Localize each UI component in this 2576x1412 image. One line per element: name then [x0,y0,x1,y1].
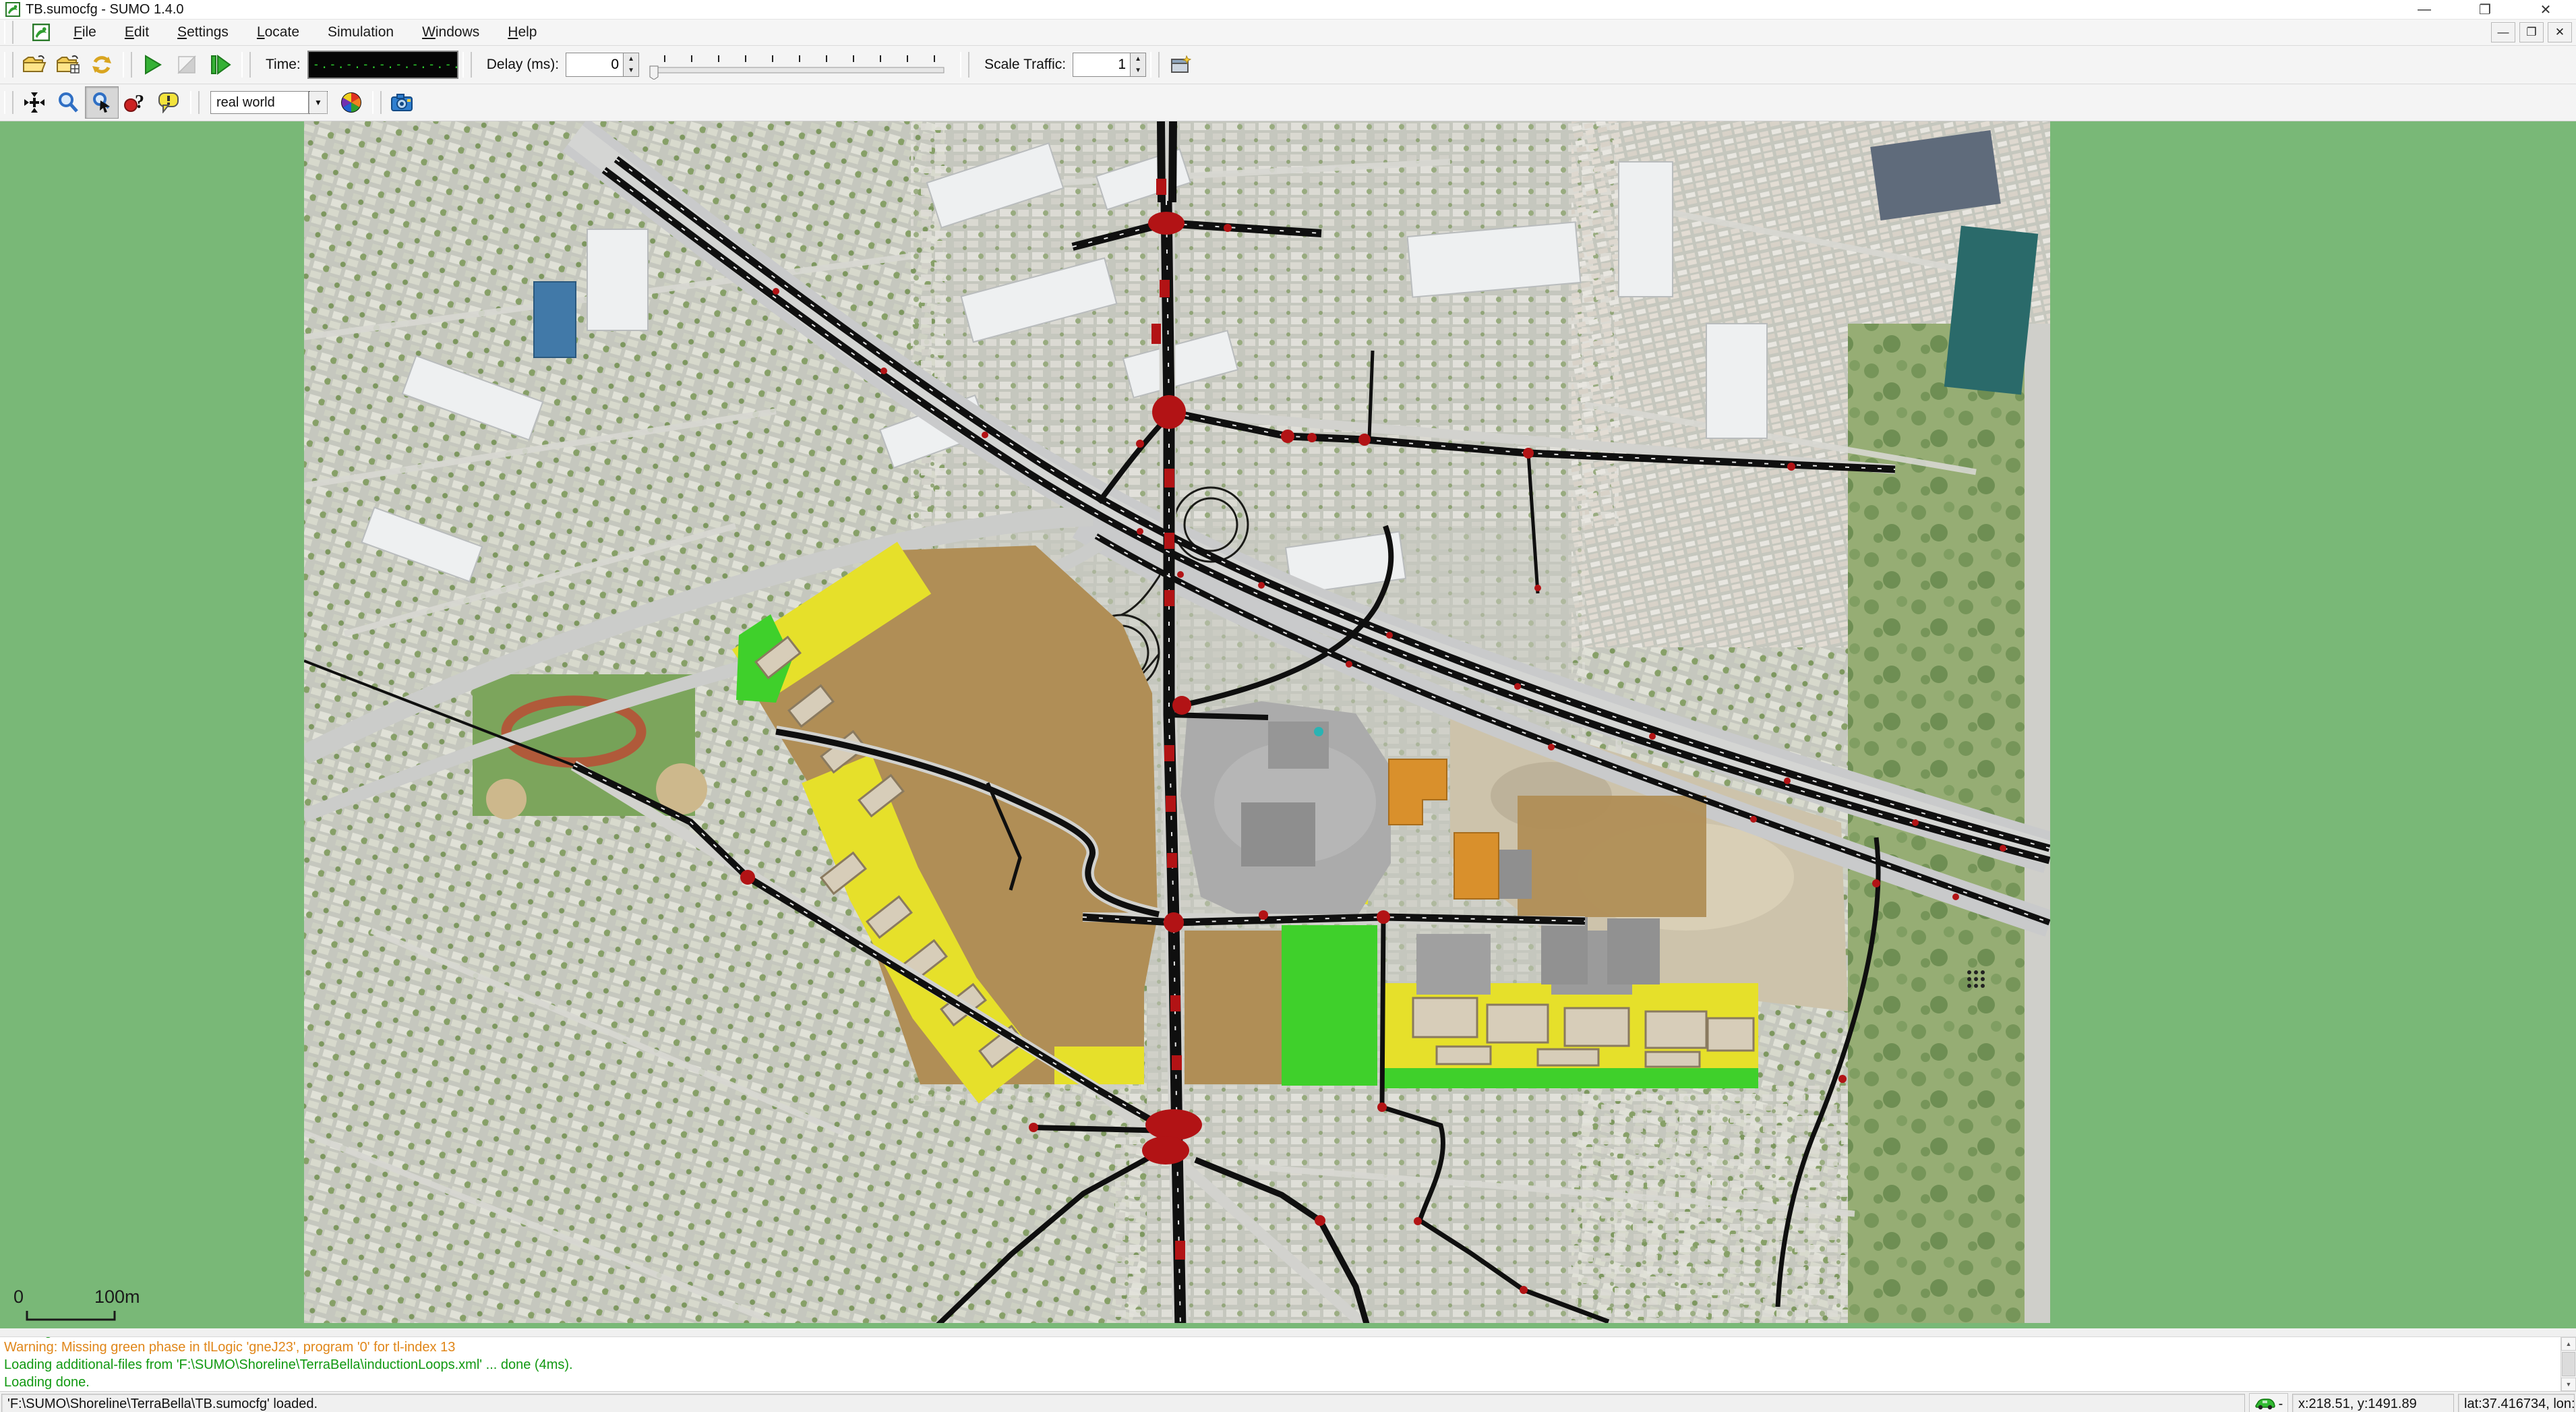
coloring-scheme-combobox[interactable]: real world ▼ [210,91,328,114]
status-latlon: lat:37.416734, lon:-122.090 [2458,1394,2575,1412]
mdi-close-button[interactable]: ✕ [2548,22,2572,42]
delay-label: Delay (ms): [487,57,559,73]
stop-button[interactable] [170,49,204,81]
message-log[interactable]: Loading net-file from 'F:\SUMO\Shoreline… [0,1337,2576,1392]
scale-distance-label: 100m [94,1287,140,1307]
delay-down-arrow[interactable]: ▼ [624,65,638,76]
toolbar-grip[interactable] [372,91,382,114]
log-line-additional: Loading additional-files from 'F:\SUMO\S… [4,1356,2576,1374]
menu-edit[interactable]: Edit [111,24,163,40]
chevron-down-icon[interactable]: ▼ [309,91,328,114]
edit-coloring-button[interactable] [334,86,368,119]
coloring-scheme-value: real world [210,91,309,114]
title-bar: TB.sumocfg - SUMO 1.4.0 — ❐ ✕ [0,0,2576,20]
menu-settings[interactable]: Settings [163,24,243,40]
menu-bar: File Edit Settings Locate Simulation Win… [0,20,2576,46]
question-icon: ? [124,92,147,113]
help-button[interactable]: ? [119,86,152,119]
stop-icon [177,55,196,74]
car-icon [2254,1398,2276,1410]
minimize-button[interactable]: — [2394,0,2455,19]
delay-input[interactable] [566,53,624,77]
screenshot-button[interactable] [386,86,419,119]
toolbar-grip[interactable] [241,52,251,78]
toolbar-grip[interactable] [4,52,13,78]
tooltip-toggle-button[interactable] [152,86,186,119]
mdi-app-icon [32,24,50,41]
window-title: TB.sumocfg - SUMO 1.4.0 [26,2,184,18]
toolbar-grip[interactable] [1150,52,1160,78]
open-config-button[interactable] [18,49,51,81]
recenter-view-button[interactable] [18,86,51,119]
magnifier-cursor-icon [91,92,113,113]
scale-up-arrow[interactable]: ▲ [1131,53,1145,65]
camera-icon [391,93,414,112]
magnifier-icon [57,92,79,113]
map-viewport[interactable]: 0 100m [0,121,2576,1328]
menu-file[interactable]: File [59,24,111,40]
reload-icon [91,54,113,76]
scale-zero-label: 0 [13,1287,24,1307]
mdi-minimize-button[interactable]: — [2491,22,2515,42]
log-line-warning: Warning: Missing green phase in tlLogic … [4,1339,2576,1356]
delay-spinner: ▲ ▼ [566,53,639,77]
scroll-thumb[interactable] [2562,1352,2575,1376]
time-label: Time: [266,57,301,73]
menu-windows[interactable]: Windows [408,24,493,40]
vehicle-tracker-button[interactable]: - [2249,1393,2288,1412]
delay-slider-thumb[interactable] [650,66,658,80]
open-folder-icon [22,55,47,75]
scale-traffic-input[interactable] [1073,53,1131,77]
status-message: 'F:\SUMO\Shoreline\TerraBella\TB.sumocfg… [1,1394,2245,1412]
app-icon [5,2,20,17]
step-icon [210,55,231,75]
scale-down-arrow[interactable]: ▼ [1131,65,1145,76]
scale-traffic-spinner: ▲ ▼ [1073,53,1146,77]
toolbar-grip[interactable] [462,52,472,78]
toolbar-grip[interactable] [123,52,132,78]
new-view-button[interactable] [1164,49,1197,81]
simulation-toolbar: Time: -.-.-.-.-.-.-.-.-.-.-.-.-.-.- Dela… [0,46,2576,84]
svg-text:?: ? [135,92,144,113]
toolbar-grip[interactable] [4,21,13,44]
menu-locate[interactable]: Locate [243,24,313,40]
toolbar-grip[interactable] [960,52,969,78]
log-scrollbar[interactable]: ▲ ▼ [2560,1337,2576,1391]
toolbar-grip[interactable] [4,91,13,114]
run-button[interactable] [136,49,170,81]
color-wheel-icon [340,92,362,113]
delay-up-arrow[interactable]: ▲ [624,53,638,65]
reload-button[interactable] [85,49,119,81]
open-network-icon [56,55,80,75]
delay-slider[interactable] [645,50,948,80]
mdi-restore-button[interactable]: ❐ [2519,22,2544,42]
restore-button[interactable]: ❐ [2455,0,2515,19]
toolbar-grip[interactable] [190,91,200,114]
close-button[interactable]: ✕ [2515,0,2576,19]
menu-simulation[interactable]: Simulation [313,24,408,40]
menu-help[interactable]: Help [493,24,551,40]
recenter-icon [24,92,45,113]
scale-traffic-label: Scale Traffic: [984,57,1066,73]
play-icon [143,55,163,75]
status-bar: 'F:\SUMO\Shoreline\TerraBella\TB.sumocfg… [0,1392,2576,1412]
vehicle-tracker-suffix: - [2279,1396,2283,1412]
open-network-button[interactable] [51,49,85,81]
scroll-down-icon[interactable]: ▼ [2561,1378,2576,1391]
zoom-button[interactable] [51,86,85,119]
tooltip-bubble-icon [158,92,181,113]
splitter-handle[interactable] [0,1328,2576,1337]
new-window-icon [1170,55,1191,74]
step-button[interactable] [204,49,237,81]
view-toolbar: ? real world ▼ [0,84,2576,121]
zoom-style-button[interactable] [85,86,119,119]
status-xy: x:218.51, y:1491.89 [2292,1394,2454,1412]
scroll-up-icon[interactable]: ▲ [2561,1337,2576,1351]
log-line-done: Loading done. [4,1374,2576,1391]
sumo-window: TB.sumocfg - SUMO 1.4.0 — ❐ ✕ File Edit … [0,0,2576,1412]
time-display: -.-.-.-.-.-.-.-.-.-.-.-.-.-.- [307,51,458,79]
map-canvas[interactable]: 0 100m [0,121,2576,1328]
